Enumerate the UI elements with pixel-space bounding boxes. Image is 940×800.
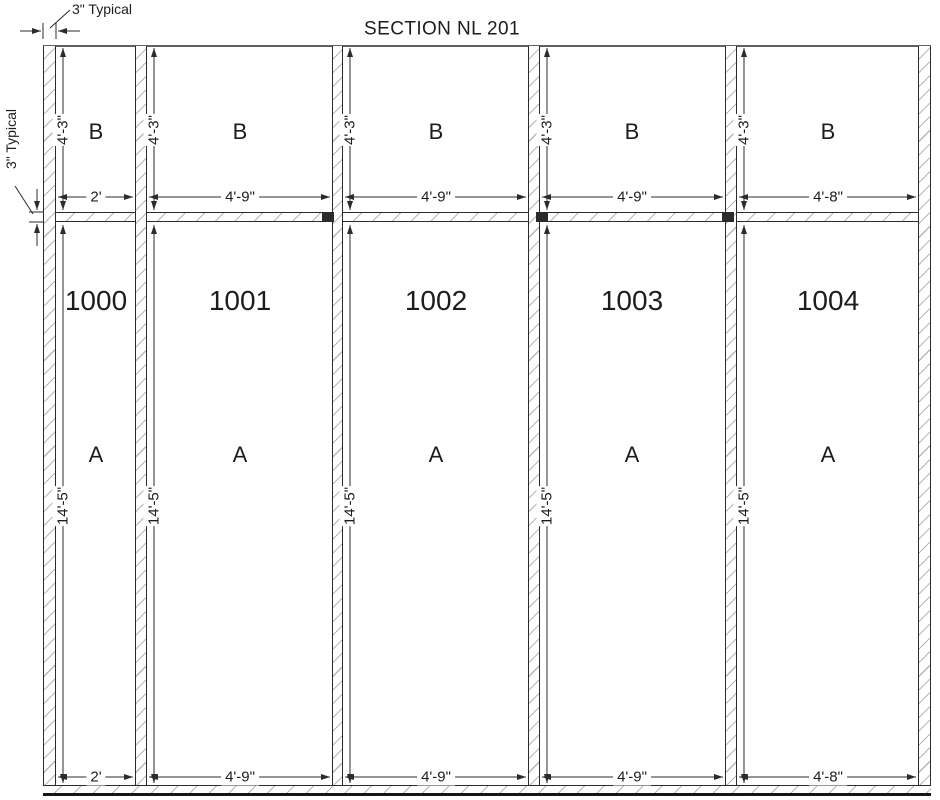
dimension-top-height: 4'-3" — [340, 114, 361, 146]
bay-number: 1004 — [797, 287, 859, 315]
dimension-top-width: 2' — [86, 189, 105, 206]
region-label-bottom: A — [233, 444, 248, 466]
dimension-top-height: 4'-3" — [734, 114, 755, 146]
dimension-bottom-height: 14'-5" — [537, 486, 558, 526]
dimension-top-height: 4'-3" — [144, 114, 165, 146]
region-label-bottom: A — [429, 444, 444, 466]
region-label-top: B — [429, 121, 444, 143]
shelf-band-bay5 — [737, 212, 918, 222]
wall-2 — [135, 46, 147, 785]
wall-3 — [332, 46, 343, 785]
dimension-top-width: 4'-9" — [613, 189, 651, 206]
wall-4 — [528, 46, 540, 785]
wall-left — [43, 46, 56, 785]
dimension-bottom-width: 4'-9" — [221, 769, 259, 786]
dimension-top-width: 4'-9" — [417, 189, 455, 206]
drawing-title: SECTION NL 201 — [364, 20, 520, 39]
bay-number: 1001 — [209, 287, 271, 315]
dimension-top-height: 4'-3" — [53, 114, 74, 146]
band-joint-block — [722, 212, 734, 222]
slab-thickness-note: 3" Typical — [4, 109, 18, 169]
dimension-bottom-width: 4'-9" — [417, 769, 455, 786]
wall-5 — [725, 46, 737, 785]
bay-number: 1000 — [65, 287, 127, 315]
wall-right — [918, 46, 931, 785]
dimension-top-width: 4'-8" — [809, 189, 847, 206]
region-label-bottom: A — [821, 444, 836, 466]
dimension-bottom-width: 2' — [86, 769, 105, 786]
region-label-top: B — [89, 121, 104, 143]
dimension-top-width: 4'-9" — [221, 189, 259, 206]
band-joint-block — [322, 212, 334, 222]
band-joint-block — [536, 212, 548, 222]
wall-thickness-note: 3" Typical — [72, 2, 132, 16]
dimension-top-height: 4'-3" — [537, 114, 558, 146]
shelf-band-bay4 — [540, 212, 725, 222]
shelf-band-bay3 — [343, 212, 528, 222]
shelf-band-bay2 — [147, 212, 332, 222]
dimension-bottom-height: 14'-5" — [53, 486, 74, 526]
region-label-bottom: A — [89, 444, 104, 466]
bottom-slab — [43, 785, 931, 796]
dimension-bottom-width: 4'-9" — [613, 769, 651, 786]
dimension-bottom-height: 14'-5" — [340, 486, 361, 526]
shelf-band-bay1 — [56, 212, 135, 222]
region-label-top: B — [821, 121, 836, 143]
region-label-top: B — [625, 121, 640, 143]
section-drawing: SECTION NL 201 3" Typical 3" Typical B 4… — [0, 0, 940, 800]
dimension-bottom-height: 14'-5" — [144, 486, 165, 526]
bay-number: 1002 — [405, 287, 467, 315]
bay-number: 1003 — [601, 287, 663, 315]
dimension-bottom-width: 4'-8" — [809, 769, 847, 786]
region-label-top: B — [233, 121, 248, 143]
region-label-bottom: A — [625, 444, 640, 466]
dimension-bottom-height: 14'-5" — [734, 486, 755, 526]
